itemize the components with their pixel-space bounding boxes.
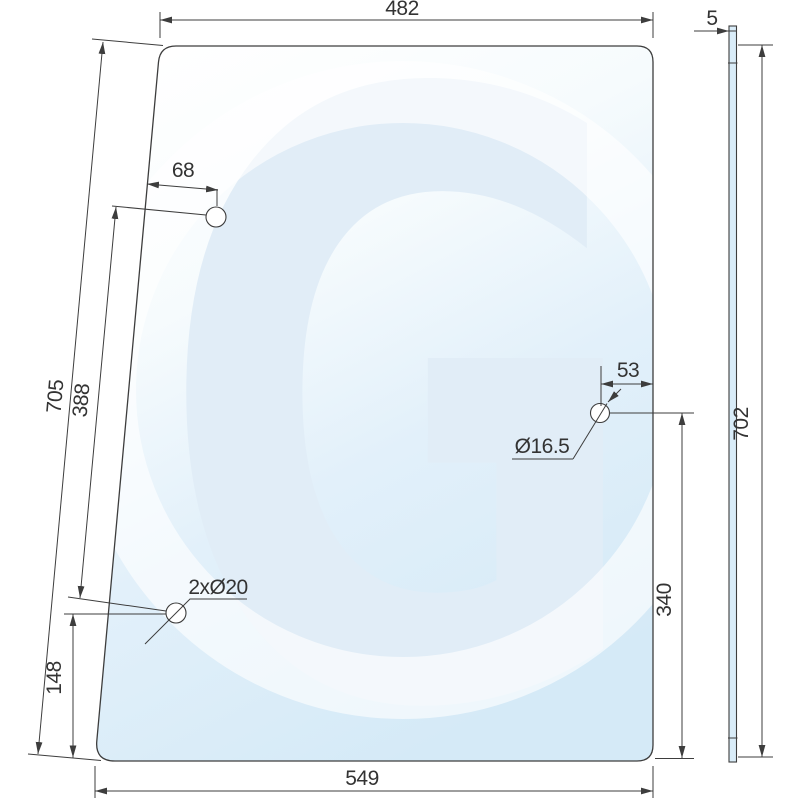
side-profile-strip [729,26,737,762]
hole-right [591,404,610,423]
glass-side-profile [728,26,738,762]
technical-drawing-page: G 482 549 705 388 148 [0,0,800,800]
dim-right-hole-to-bottom: 340 [653,413,694,759]
watermark-group: G [105,0,701,800]
dim-lower-hole-to-bottom-label: 148 [43,661,66,695]
glass-pane-drawing: G 482 549 705 388 148 [0,0,800,800]
lower-holes-diameter-label: 2xØ20 [188,576,247,599]
dim-top-width: 482 [160,0,653,38]
dim-hole-to-hole: 388 [69,207,116,598]
dim-lower-hole-to-bottom: 148 [43,614,73,758]
dim-profile-thickness-label: 5 [706,7,717,30]
dim-left-edge-height-label: 705 [43,379,69,414]
dim-upper-hole-offset-label: 68 [172,159,194,182]
dim-profile-height-label: 702 [730,407,753,441]
dim-top-width-label: 482 [385,0,419,20]
dim-right-hole-to-bottom-label: 340 [653,583,676,617]
dim-bottom-width-label: 549 [345,767,379,790]
dim-hole-to-hole-label: 388 [69,383,95,418]
hole-upper-left [206,207,226,227]
dim-bottom-width: 549 [95,766,653,798]
extension-line [28,754,101,761]
dim-right-hole-offset-label: 53 [617,359,639,382]
right-hole-diameter-label: Ø16.5 [515,435,570,458]
